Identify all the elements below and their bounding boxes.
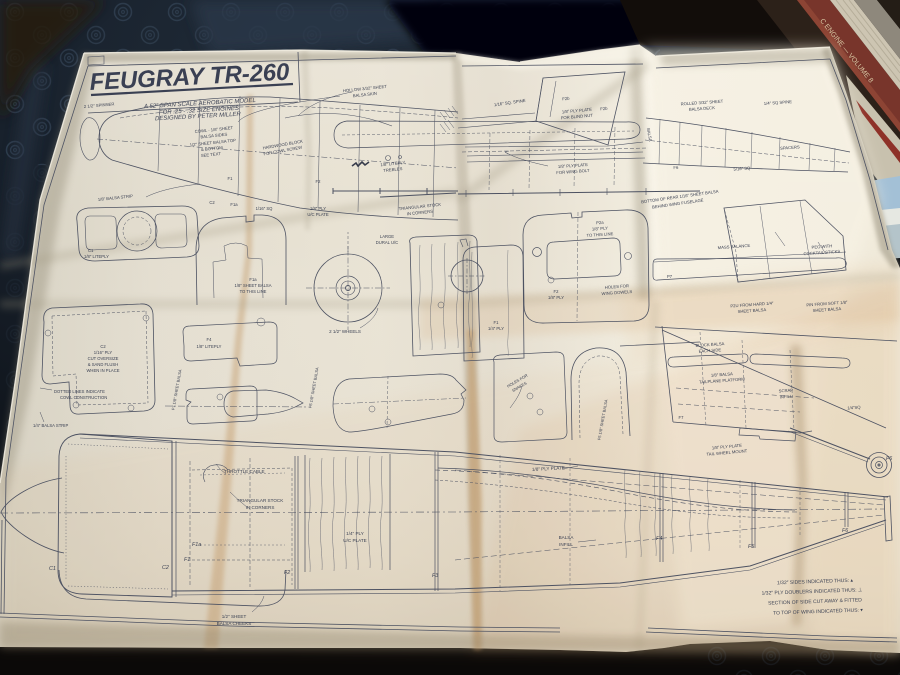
svg-text:F1a: F1a [249, 277, 257, 282]
svg-text:F7: F7 [679, 415, 685, 420]
svg-text:1/8″ PLY: 1/8″ PLY [548, 295, 564, 300]
svg-text:INFILL: INFILL [559, 542, 573, 547]
svg-text:BALSA: BALSA [559, 535, 575, 540]
svg-text:1/16″ SQ: 1/16″ SQ [256, 206, 274, 211]
svg-text:1/4″ BALSA STRIP: 1/4″ BALSA STRIP [33, 423, 68, 428]
svg-text:C2: C2 [209, 200, 215, 205]
svg-text:COWL CONSTRUCTION: COWL CONSTRUCTION [60, 395, 107, 400]
svg-text:C1: C1 [49, 566, 56, 572]
svg-text:F2b: F2b [600, 106, 608, 112]
svg-text:U/C PLATE: U/C PLATE [307, 212, 329, 217]
svg-text:F2: F2 [554, 289, 560, 294]
svg-text:1/8″ LITEPLY: 1/8″ LITEPLY [197, 344, 222, 349]
svg-text:F4: F4 [656, 536, 662, 542]
svg-text:CUT OVERSIZE: CUT OVERSIZE [88, 356, 119, 361]
svg-text:F1a: F1a [192, 542, 201, 548]
svg-text:INFILL: INFILL [779, 394, 793, 400]
svg-text:DURAL U/C: DURAL U/C [376, 240, 398, 245]
svg-text:C2: C2 [100, 344, 106, 349]
svg-text:2 1/2″ WHEELS: 2 1/2″ WHEELS [329, 329, 361, 334]
svg-text:F2b: F2b [562, 96, 570, 102]
svg-text:DOTTED LINES INDICATE: DOTTED LINES INDICATE [54, 389, 105, 394]
svg-text:F5: F5 [748, 544, 755, 550]
svg-text:C2: C2 [162, 565, 169, 571]
svg-text:WHEN IN PLACE: WHEN IN PLACE [86, 368, 119, 373]
svg-text:1/8″ PLY: 1/8″ PLY [310, 206, 326, 211]
svg-text:1/8″ LITEPLY: 1/8″ LITEPLY [84, 254, 109, 259]
svg-text:TO THIS LINE: TO THIS LINE [240, 289, 267, 294]
svg-text:1/4″SQ: 1/4″SQ [847, 404, 861, 410]
svg-text:1/4″ PLY: 1/4″ PLY [488, 326, 504, 331]
svg-text:1/8″ SHEET BALSA: 1/8″ SHEET BALSA [234, 283, 271, 288]
svg-text:F1: F1 [494, 320, 500, 325]
svg-text:1/2″ SHEET: 1/2″ SHEET [222, 614, 247, 619]
svg-text:1/4″ PLY: 1/4″ PLY [346, 531, 364, 536]
svg-text:THROTTLE CABLE: THROTTLE CABLE [224, 469, 265, 474]
svg-text:F2: F2 [316, 179, 322, 184]
svg-text:BALSA CHEEKS: BALSA CHEEKS [217, 621, 252, 626]
svg-text:& SAND FLUSH: & SAND FLUSH [88, 362, 118, 367]
svg-text:C1: C1 [88, 248, 94, 253]
svg-text:LARGE: LARGE [380, 234, 394, 239]
svg-text:P7: P7 [667, 274, 673, 279]
svg-text:F1: F1 [184, 557, 190, 563]
svg-text:F3: F3 [432, 573, 438, 579]
svg-text:U/C PLATE: U/C PLATE [343, 538, 366, 543]
svg-text:IN CORNERS: IN CORNERS [246, 505, 275, 510]
svg-text:TRIANGULAR STOCK: TRIANGULAR STOCK [237, 498, 285, 503]
svg-text:F2: F2 [284, 570, 290, 576]
svg-text:F6: F6 [842, 528, 848, 534]
svg-text:1/16″ PLY: 1/16″ PLY [94, 350, 113, 355]
svg-text:F4: F4 [207, 337, 213, 342]
svg-text:F6: F6 [886, 456, 892, 462]
svg-text:P2a: P2a [596, 220, 604, 226]
svg-text:F1a: F1a [230, 202, 238, 207]
svg-text:F1: F1 [228, 176, 234, 181]
svg-text:SCRAP: SCRAP [779, 387, 794, 393]
